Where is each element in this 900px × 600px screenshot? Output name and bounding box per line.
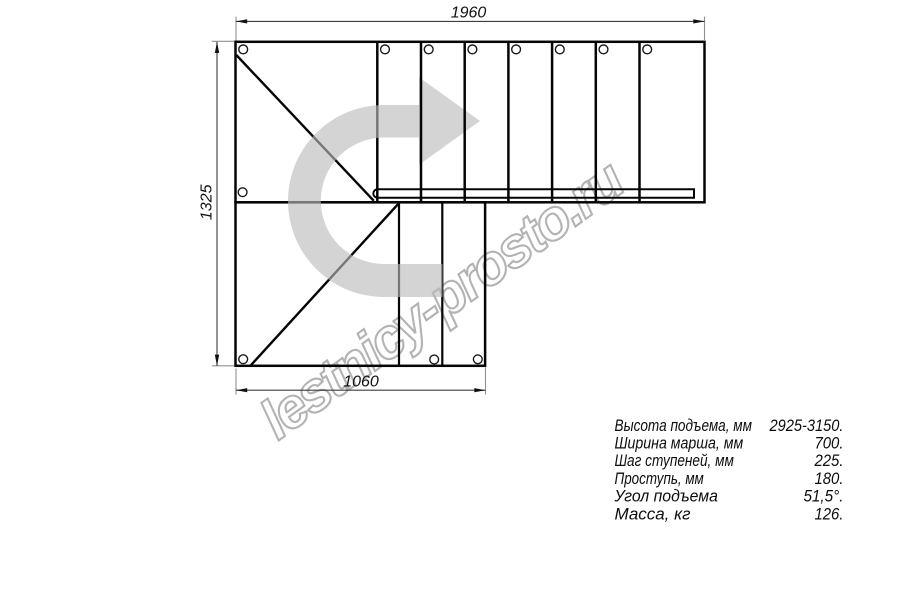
svg-text:700.: 700. [814, 435, 843, 453]
svg-text:1960: 1960 [451, 4, 487, 21]
svg-text:Проступь, мм: Проступь, мм [615, 470, 704, 489]
svg-text:1325: 1325 [199, 184, 216, 220]
svg-text:Масса, кг: Масса, кг [615, 505, 691, 524]
svg-text:1060: 1060 [343, 374, 379, 391]
svg-text:51,5°.: 51,5°. [803, 488, 843, 506]
svg-text:Угол подъема: Угол подъема [614, 487, 718, 505]
svg-text:180.: 180. [814, 470, 843, 488]
svg-text:225.: 225. [814, 453, 844, 471]
svg-text:Высота подъема, мм: Высота подъема, мм [615, 417, 752, 435]
svg-text:Ширина марша, мм: Ширина марша, мм [615, 435, 744, 453]
svg-text:Шаг ступеней, мм: Шаг ступеней, мм [615, 452, 735, 470]
svg-text:126.: 126. [814, 506, 843, 524]
svg-text:2925-3150.: 2925-3150. [769, 417, 844, 435]
